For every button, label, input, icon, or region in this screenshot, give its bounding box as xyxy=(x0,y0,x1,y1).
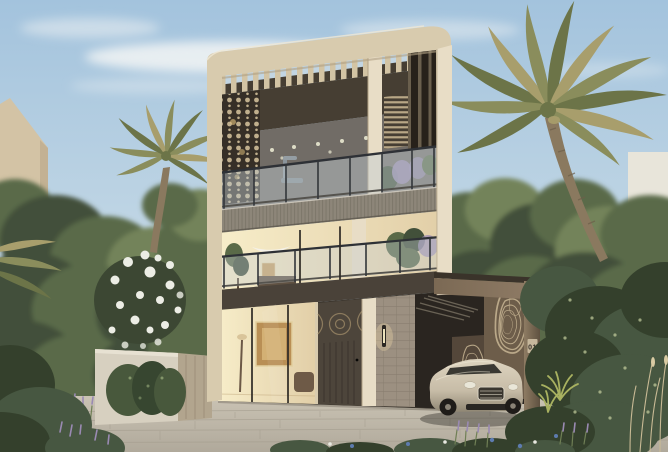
entry-door xyxy=(318,299,362,406)
rendering-canvas: 01 xyxy=(0,0,668,452)
villa-exterior-scene: 01 xyxy=(0,0,668,452)
door-jamb xyxy=(315,302,318,404)
armchair xyxy=(294,372,314,392)
foreground-bush-right xyxy=(505,262,668,452)
wall-sconce xyxy=(375,323,393,351)
ground-pillar xyxy=(362,298,376,406)
car-headlight-left xyxy=(464,382,476,389)
hedge xyxy=(106,361,186,416)
car-headlight-right xyxy=(508,384,518,390)
tiled-wall xyxy=(375,295,415,408)
ground-glass-window xyxy=(218,302,315,404)
villa xyxy=(207,26,452,410)
vertical-fins xyxy=(411,50,438,150)
ground-floor xyxy=(218,292,440,409)
